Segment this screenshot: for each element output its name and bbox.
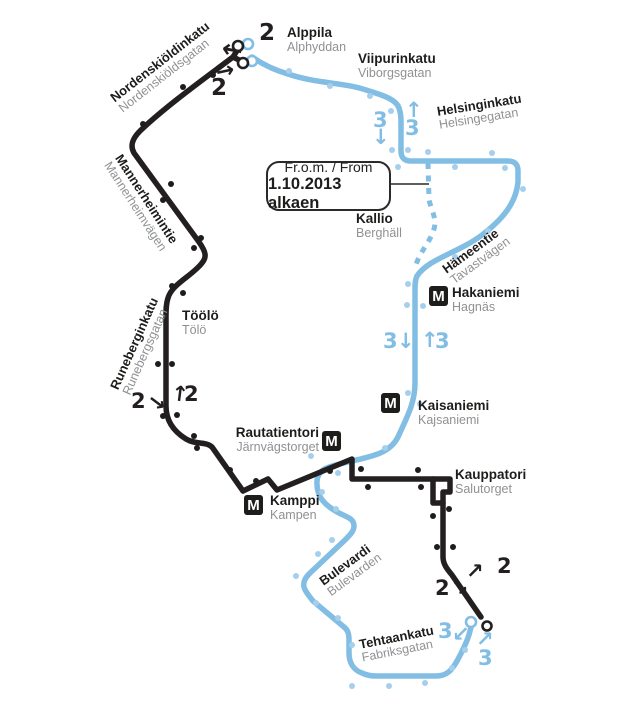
route-direction-arrow-icon: ↓	[372, 127, 390, 148]
station-name-fi: Hakaniemi	[452, 286, 520, 301]
station-label: RautatientoriJärnvägstorget	[236, 426, 319, 455]
stop-dot	[293, 573, 299, 579]
station-name-sv: Kajsaniemi	[418, 414, 489, 428]
route-direction-arrow-icon: ↓	[397, 331, 415, 352]
stop-dot	[502, 165, 508, 171]
route-number-label: 3	[438, 621, 453, 642]
stop-dot	[405, 281, 411, 287]
stop-dot	[335, 615, 341, 621]
stop-dot	[198, 235, 204, 241]
stop-dot	[180, 290, 186, 296]
tram-route-map: AlppilaAlphyddanViipurinkatuViborgsgatan…	[0, 0, 640, 702]
stop-dot	[160, 197, 166, 203]
route-number-label: 2	[184, 384, 199, 405]
stop-dot	[333, 506, 339, 512]
route-number-label: 2	[497, 556, 512, 577]
stop-dot	[365, 484, 371, 490]
stop-dot	[327, 83, 333, 89]
stop-dot	[335, 470, 341, 476]
stop-dot	[313, 600, 319, 606]
stop-dot	[367, 93, 373, 99]
callout-text-date: 1.10.2013 alkaen	[268, 175, 389, 213]
stop-dot	[389, 147, 395, 153]
route-3-line	[252, 57, 518, 676]
station-name-fi: Alppila	[287, 26, 346, 41]
stop-dot	[180, 84, 186, 90]
stop-dot	[388, 108, 394, 114]
metro-icon: M	[322, 431, 341, 451]
metro-icon: M	[429, 286, 448, 306]
station-name-fi: Kallio	[356, 212, 402, 227]
route-number-label: 3	[435, 331, 450, 352]
route-number-label: 2	[435, 578, 450, 599]
station-label: TöölöTölö	[182, 309, 219, 338]
callout-box: Fr.o.m. / From 1.10.2013 alkaen	[266, 161, 391, 211]
stop-dot	[386, 683, 392, 689]
stop-dot	[349, 683, 355, 689]
station-label: KaisaniemiKajsaniemi	[418, 399, 489, 428]
stop-dot	[174, 412, 180, 418]
stop-dot	[520, 186, 526, 192]
stop-dot	[169, 283, 175, 289]
stop-dot	[489, 150, 495, 156]
stop-dot	[422, 680, 428, 686]
station-name-sv: Alphyddan	[287, 41, 346, 55]
route-number-label: 3	[478, 648, 493, 669]
stop-dot	[140, 121, 146, 127]
station-name-sv: Järnvägstorget	[236, 441, 319, 455]
route-number-label: 3	[405, 118, 420, 139]
station-label: AlppilaAlphyddan	[287, 26, 346, 55]
stop-dot	[405, 147, 411, 153]
stop-dot	[434, 544, 440, 550]
station-name-sv: Tölö	[182, 324, 219, 338]
metro-icon: M	[244, 495, 263, 515]
route-3-discontinued-line	[415, 163, 435, 268]
station-name-fi: Viipurinkatu	[358, 52, 436, 67]
stop-dot	[452, 164, 458, 170]
stop-dot	[319, 489, 325, 495]
station-name-sv: Kampen	[270, 509, 320, 523]
stop-dot	[315, 551, 321, 557]
stop-dot	[395, 164, 401, 170]
route-direction-arrow-icon: ↘	[147, 392, 167, 415]
station-name-fi: Kamppi	[270, 494, 320, 509]
station-name-fi: Kauppatori	[455, 468, 526, 483]
stop-dot	[358, 466, 364, 472]
stop-dot	[327, 468, 333, 474]
station-label: HakaniemiHagnäs	[452, 286, 520, 315]
station-label: KallioBerghäll	[356, 212, 402, 241]
stop-dot	[450, 544, 456, 550]
stop-dot	[329, 537, 335, 543]
station-name-sv: Hagnäs	[452, 301, 520, 315]
stop-dot	[168, 181, 174, 187]
stop-dot	[420, 303, 426, 309]
station-name-sv: Salutorget	[455, 483, 526, 497]
route-number-label: 2	[131, 391, 146, 412]
stop-dot	[462, 647, 468, 653]
stop-dot	[227, 467, 233, 473]
station-name-sv: Berghäll	[356, 227, 402, 241]
station-label: ViipurinkatuViborgsgatan	[358, 52, 436, 81]
stop-dot	[430, 513, 436, 519]
station-name-fi: Töölö	[182, 309, 219, 324]
stop-dot	[446, 506, 452, 512]
stop-dot	[191, 433, 197, 439]
stop-dot	[169, 361, 175, 367]
station-name-fi: Kaisaniemi	[418, 399, 489, 414]
stop-dot	[449, 665, 455, 671]
route-direction-arrow-icon: ↙	[452, 624, 470, 645]
route-number-label: 2	[259, 22, 275, 45]
route-map-canvas	[0, 0, 640, 702]
stop-dot	[404, 302, 410, 308]
stop-dot	[382, 445, 388, 451]
station-name-fi: Rautatientori	[236, 426, 319, 441]
route-direction-arrow-icon: ↗	[466, 561, 484, 582]
stop-dot	[191, 245, 197, 251]
callout-text-from: Fr.o.m. / From	[285, 159, 373, 175]
station-name-sv: Viborgsgatan	[358, 67, 436, 81]
stop-dot	[155, 361, 161, 367]
station-label: KamppiKampen	[270, 494, 320, 523]
stop-dot	[425, 149, 431, 155]
metro-icon: M	[381, 393, 400, 413]
stop-dot	[415, 467, 421, 473]
stop-dot	[286, 68, 292, 74]
stop-dot	[253, 478, 259, 484]
route-number-label: 3	[383, 331, 398, 352]
stop-dot	[349, 642, 355, 648]
route-number-label: 2	[211, 77, 227, 100]
station-label: KauppatoriSalutorget	[455, 468, 526, 497]
stop-dot	[418, 484, 424, 490]
stop-dot	[405, 390, 411, 396]
stop-dot	[194, 445, 200, 451]
